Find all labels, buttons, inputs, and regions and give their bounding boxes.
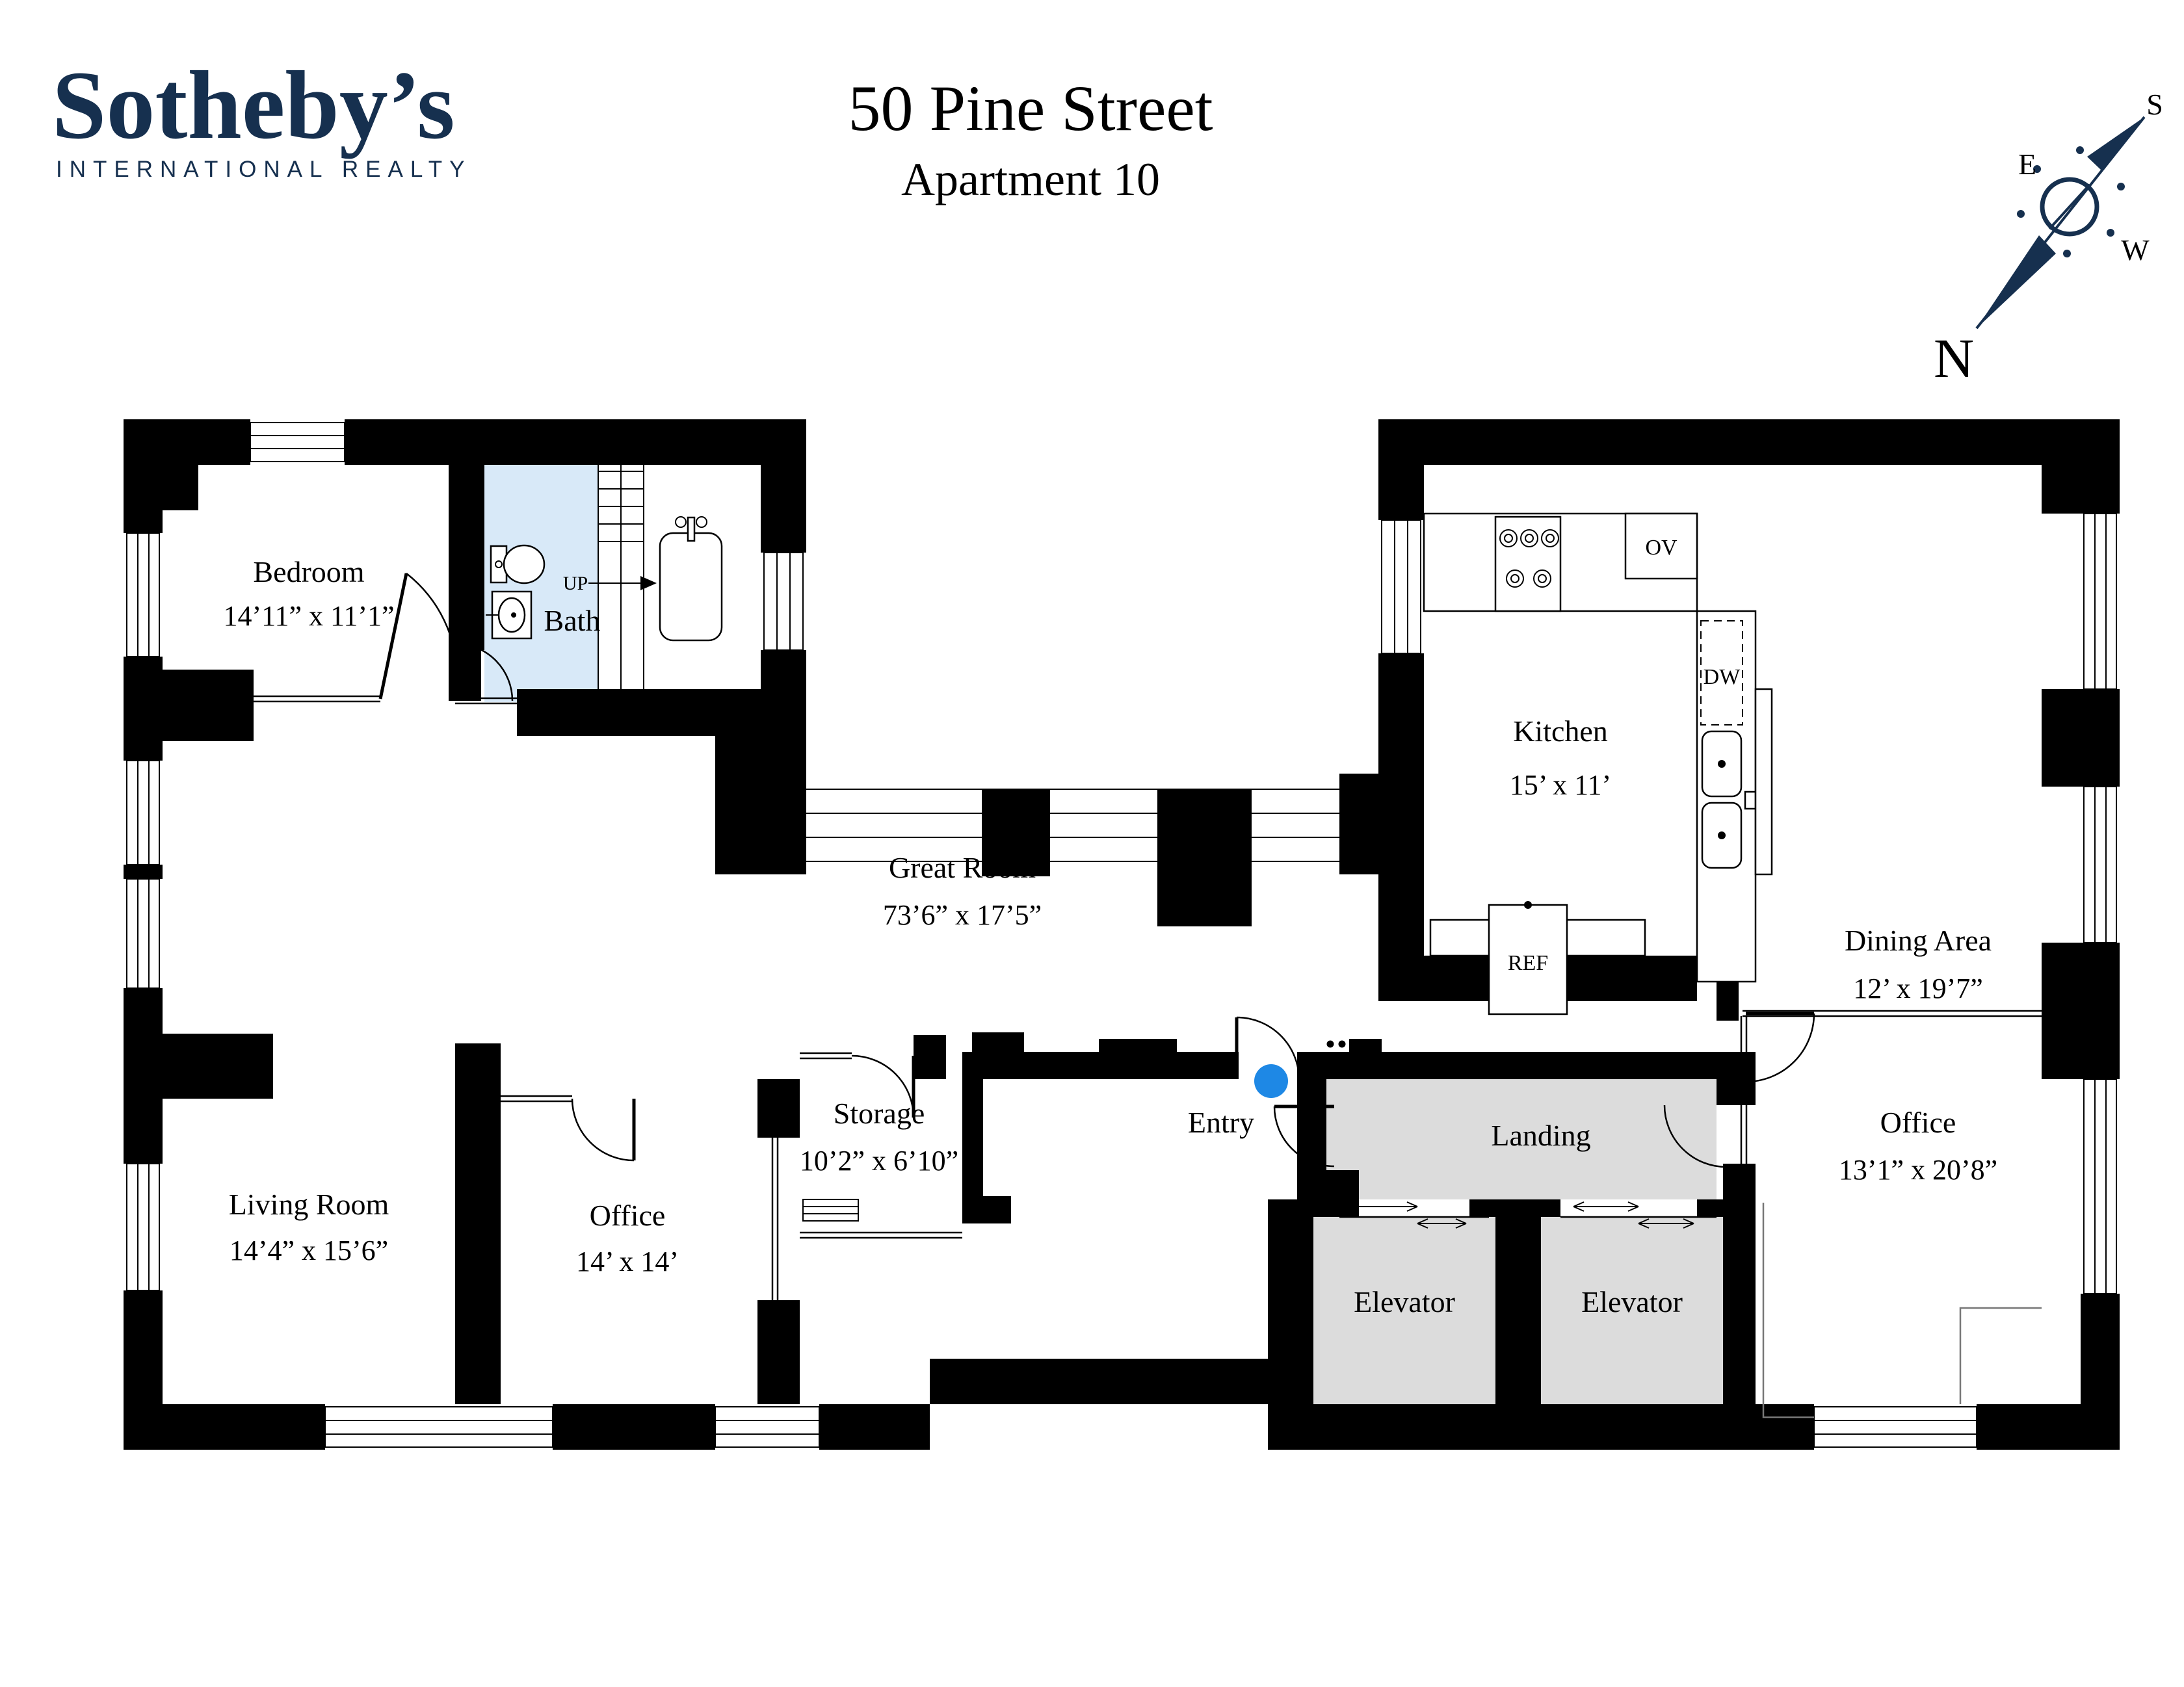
compass-south-label: S	[2146, 88, 2163, 121]
window	[127, 1164, 159, 1290]
radiator-outline	[1960, 1308, 2042, 1404]
room-dining-area: Dining Area 12’ x 19’7”	[1845, 924, 1992, 1004]
refrigerator-label: REF	[1508, 951, 1548, 975]
window	[127, 533, 159, 657]
stairs-up-label: UP	[563, 573, 588, 594]
counter-ledge	[1756, 689, 1772, 874]
room-name: Great Room	[889, 851, 1036, 884]
apartment-subtitle: Apartment 10	[901, 153, 1160, 205]
room-name: Bath	[544, 604, 601, 637]
window	[250, 423, 345, 462]
room-name: Entry	[1188, 1106, 1254, 1139]
toilet-icon	[491, 545, 544, 583]
room-name: Dining Area	[1845, 924, 1992, 957]
refrigerator-icon: REF	[1489, 901, 1567, 1014]
room-entry: Entry	[1188, 1106, 1254, 1139]
room-office-small: Office 14’ x 14’	[576, 1199, 679, 1277]
window	[325, 1407, 553, 1447]
room-name: Living Room	[229, 1188, 389, 1221]
room-elevator-left: Elevator	[1354, 1285, 1455, 1318]
sink-icon	[486, 592, 531, 638]
compass-rose-icon: N E S W	[1934, 88, 2163, 389]
storage-hatch-icon	[803, 1199, 858, 1221]
brand-subtitle: INTERNATIONAL REALTY	[56, 157, 471, 182]
sothebys-logo: Sotheby’s INTERNATIONAL REALTY	[52, 51, 471, 182]
room-name: Kitchen	[1513, 714, 1608, 748]
dining-office-door	[1746, 1014, 1814, 1082]
window	[1814, 1407, 1977, 1447]
staircase-icon	[588, 465, 657, 702]
window	[2084, 1079, 2116, 1294]
walls	[124, 419, 2120, 1450]
room-office-large: Office 13’1” x 20’8”	[1839, 1106, 1997, 1186]
room-bedroom: Bedroom 14’11” x 11’1”	[223, 555, 394, 632]
room-name: Office	[590, 1199, 666, 1232]
room-name: Bedroom	[253, 555, 364, 588]
windows	[127, 423, 2116, 1447]
room-kitchen: Kitchen 15’ x 11’	[1510, 714, 1611, 801]
bathtub-icon	[660, 517, 722, 640]
window	[715, 1407, 819, 1447]
kitchen-fixtures: OV DW REF	[1424, 514, 1772, 1014]
floorplan-page: Sotheby’s INTERNATIONAL REALTY 50 Pine S…	[0, 0, 2184, 1687]
room-dims: 15’ x 11’	[1510, 769, 1611, 801]
address-title: 50 Pine Street	[848, 72, 1213, 144]
oven-label: OV	[1645, 536, 1677, 560]
room-name: Elevator	[1581, 1285, 1683, 1318]
room-name: Office	[1880, 1106, 1956, 1139]
window	[127, 761, 159, 865]
window	[764, 553, 803, 650]
window	[2084, 787, 2116, 943]
room-dims: 10’2” x 6’10”	[800, 1145, 958, 1177]
room-dims: 12’ x 19’7”	[1853, 973, 1983, 1004]
brand-wordmark: Sotheby’s	[52, 51, 455, 159]
window	[127, 879, 159, 988]
compass-west-label: W	[2121, 233, 2150, 267]
room-name: Landing	[1491, 1119, 1590, 1152]
door-dot	[1327, 1041, 1334, 1048]
room-dims: 14’11” x 11’1”	[223, 600, 394, 632]
room-great-room: Great Room 73’6” x 17’5”	[883, 851, 1042, 931]
room-elevator-right: Elevator	[1581, 1285, 1683, 1318]
compass-east-label: E	[2018, 148, 2036, 181]
room-storage: Storage 10’2” x 6’10”	[800, 1097, 958, 1177]
room-landing: Landing	[1491, 1119, 1590, 1152]
room-living-room: Living Room 14’4” x 15’6”	[229, 1188, 389, 1266]
entry-point-marker	[1254, 1064, 1288, 1098]
room-dims: 14’4” x 15’6”	[230, 1235, 388, 1266]
window	[2084, 514, 2116, 689]
radiator-outline	[1763, 1203, 1814, 1417]
room-dims: 73’6” x 17’5”	[883, 899, 1042, 931]
page-title: 50 Pine Street Apartment 10	[848, 72, 1213, 205]
room-dims: 13’1” x 20’8”	[1839, 1154, 1997, 1186]
room-name: Storage	[834, 1097, 925, 1130]
oven-icon: OV	[1625, 514, 1697, 579]
bedroom-door	[380, 573, 457, 699]
office-small-door	[572, 1099, 634, 1160]
window	[1382, 520, 1421, 653]
room-name: Elevator	[1354, 1285, 1455, 1318]
compass-north-label: N	[1934, 327, 1974, 389]
dishwasher-label: DW	[1704, 665, 1741, 689]
stove-icon	[1495, 517, 1560, 611]
door-dot	[1339, 1041, 1346, 1048]
up-arrow-icon	[640, 576, 657, 590]
room-dims: 14’ x 14’	[576, 1246, 679, 1277]
dishwasher-icon: DW	[1701, 621, 1743, 725]
